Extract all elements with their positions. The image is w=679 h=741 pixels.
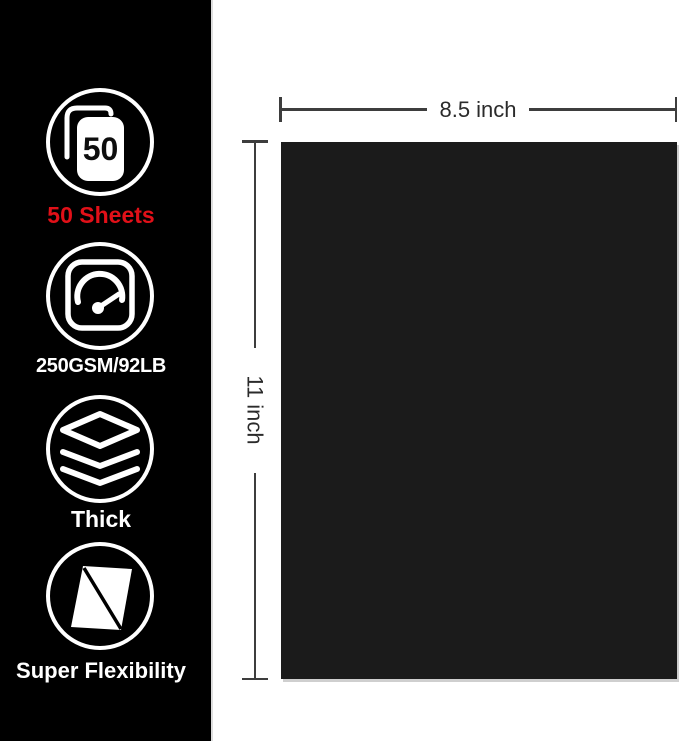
feature-item-flexibility	[46, 542, 154, 650]
dimension-tick-right	[675, 97, 678, 122]
feature-sidebar: 50 50 Sheets 250GSM/92LB Thick Super Fle…	[0, 0, 213, 741]
width-dimension-label: 8.5 inch	[427, 97, 528, 123]
feature-label-flexibility: Super Flexibility	[0, 659, 202, 683]
feature-label-weight: 250GSM/92LB	[0, 355, 202, 377]
dimension-tick-bottom	[242, 678, 268, 681]
layers-icon	[50, 399, 150, 499]
height-dimension-label-wrap: 11 inch	[242, 348, 268, 473]
dimension-line-bottom	[254, 473, 257, 678]
width-dimension: 8.5 inch	[279, 97, 677, 122]
dimension-line-top	[254, 143, 257, 348]
sheet-count-badge: 50	[83, 131, 119, 167]
flexible-sheet-icon	[50, 546, 150, 646]
gauge-icon	[50, 246, 150, 346]
feature-item-thick	[46, 395, 154, 503]
feature-item-sheet-count: 50	[46, 88, 154, 196]
feature-label-thick: Thick	[0, 507, 202, 532]
feature-label-sheet-count: 50 Sheets	[0, 203, 202, 228]
feature-item-weight	[46, 242, 154, 350]
dimension-line-left	[282, 108, 428, 111]
sheet-stack-icon: 50	[50, 92, 150, 192]
height-dimension-label: 11 inch	[242, 375, 268, 444]
height-dimension: 11 inch	[242, 140, 268, 680]
paper-sheet	[281, 142, 677, 679]
dimension-line-right	[529, 108, 675, 111]
